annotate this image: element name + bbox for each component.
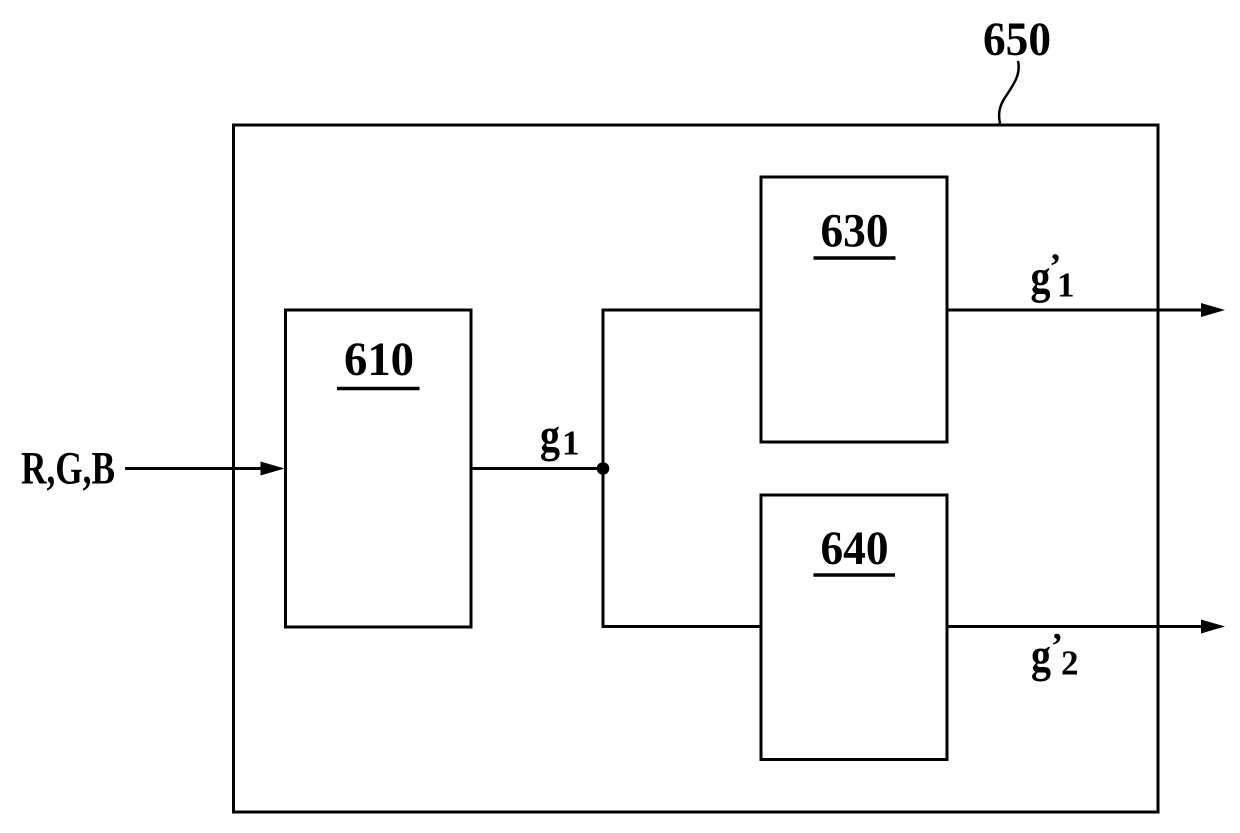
svg-text:R,G,B: R,G,B [21, 443, 115, 495]
svg-text:g: g [540, 410, 560, 463]
svg-text:g: g [1031, 630, 1051, 683]
svg-text:2: 2 [1061, 644, 1079, 683]
svg-text:610: 610 [344, 333, 414, 386]
svg-text:640: 640 [821, 522, 889, 575]
svg-text:650: 650 [983, 13, 1051, 66]
svg-text:630: 630 [821, 205, 889, 258]
svg-text:1: 1 [562, 424, 580, 463]
svg-text:1: 1 [1057, 266, 1075, 305]
svg-text:g: g [1031, 251, 1051, 304]
